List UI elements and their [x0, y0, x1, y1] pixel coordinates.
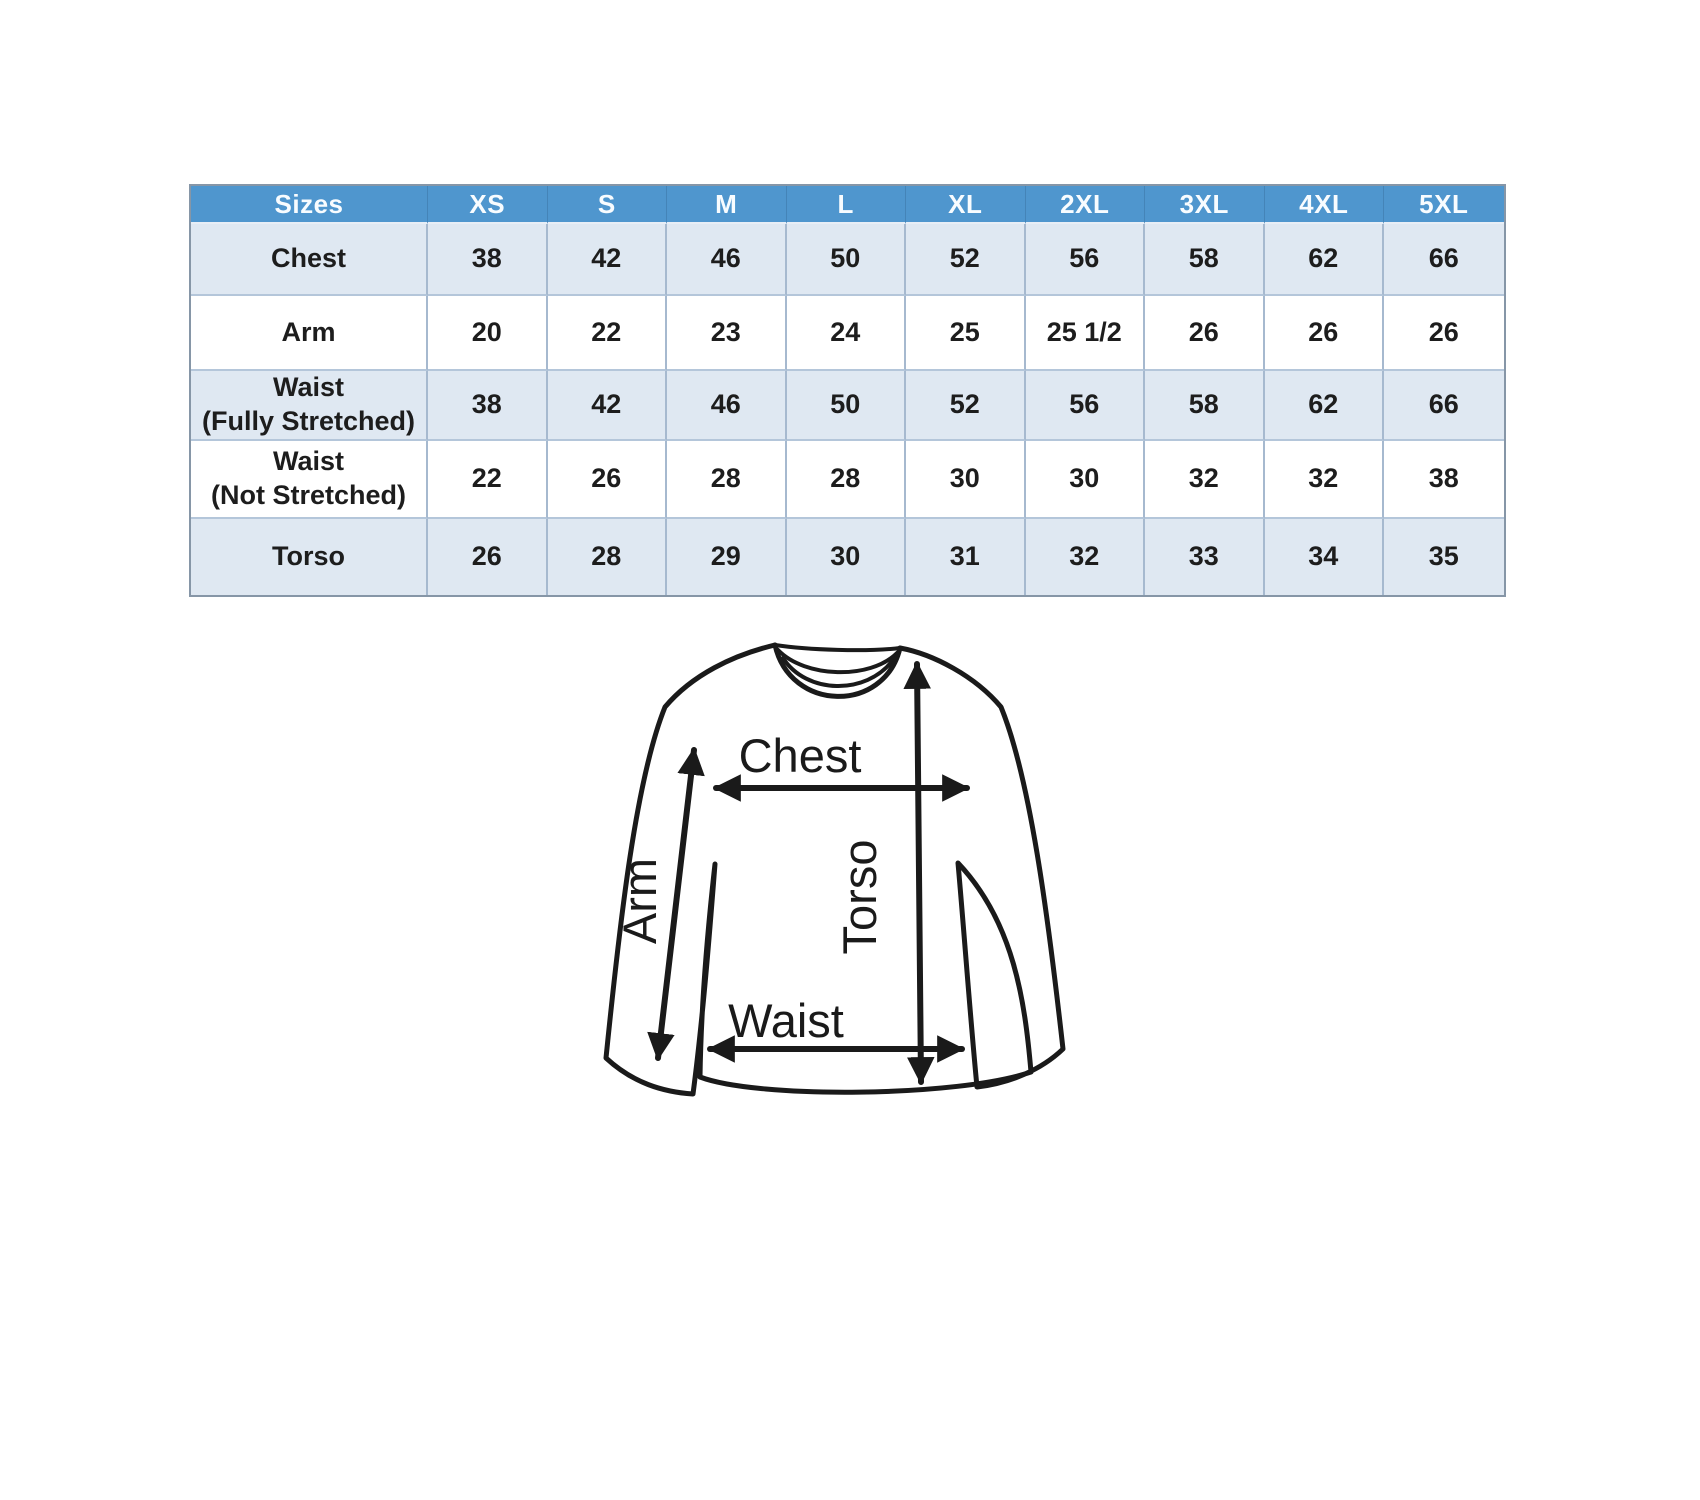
column-header-l: L — [787, 186, 907, 224]
size-guide-image: SizesXSSMLXL2XL3XL4XL5XL Chest3842465052… — [0, 0, 1700, 1500]
measurement-cell: 31 — [906, 519, 1026, 595]
measurement-cell: 58 — [1145, 371, 1265, 441]
measurement-cell: 42 — [548, 224, 668, 296]
measurement-cell: 22 — [428, 441, 548, 519]
measurement-cell: 28 — [667, 441, 787, 519]
measurement-cell: 38 — [428, 371, 548, 441]
measurement-cell: 24 — [787, 296, 907, 371]
measurement-cell: 28 — [548, 519, 668, 595]
measurement-cell: 52 — [906, 224, 1026, 296]
column-header-xs: XS — [428, 186, 548, 224]
size-chart-header-row: SizesXSSMLXL2XL3XL4XL5XL — [191, 186, 1504, 224]
measurement-cell: 33 — [1145, 519, 1265, 595]
measurement-cell: 25 1/2 — [1026, 296, 1146, 371]
arm-label: Arm — [613, 858, 666, 944]
measurement-cell: 28 — [787, 441, 907, 519]
measurement-cell: 22 — [548, 296, 668, 371]
long-sleeve-shirt-diagram: Chest Waist Torso Arm — [565, 608, 1090, 1120]
row-label: Arm — [191, 296, 428, 371]
measurement-cell: 50 — [787, 371, 907, 441]
size-chart-table-wrap: SizesXSSMLXL2XL3XL4XL5XL Chest3842465052… — [189, 184, 1506, 597]
collar-band-line — [778, 650, 897, 672]
column-header-xl: XL — [906, 186, 1026, 224]
table-row: Chest384246505256586266 — [191, 224, 1504, 296]
table-row: Torso262829303132333435 — [191, 519, 1504, 595]
torso-arrow — [917, 664, 921, 1082]
measurement-cell: 52 — [906, 371, 1026, 441]
measurement-cell: 46 — [667, 224, 787, 296]
column-header-3xl: 3XL — [1145, 186, 1265, 224]
table-row: Waist(Not Stretched)222628283030323238 — [191, 441, 1504, 519]
column-header-s: S — [548, 186, 668, 224]
measurement-cell: 32 — [1145, 441, 1265, 519]
size-chart-table: SizesXSSMLXL2XL3XL4XL5XL Chest3842465052… — [191, 186, 1504, 595]
row-label: Waist(Not Stretched) — [191, 441, 428, 519]
measurement-cell: 25 — [906, 296, 1026, 371]
size-chart-head: SizesXSSMLXL2XL3XL4XL5XL — [191, 186, 1504, 224]
column-header-m: M — [667, 186, 787, 224]
row-label: Torso — [191, 519, 428, 595]
measurement-cell: 34 — [1265, 519, 1385, 595]
measurement-cell: 50 — [787, 224, 907, 296]
waist-label: Waist — [728, 994, 844, 1047]
collar — [775, 645, 900, 696]
column-header-sizes: Sizes — [191, 186, 428, 224]
measurement-cell: 26 — [1265, 296, 1385, 371]
measurement-cell: 32 — [1026, 519, 1146, 595]
measurement-cell: 23 — [667, 296, 787, 371]
measurement-cell: 26 — [428, 519, 548, 595]
row-label-note: (Not Stretched) — [191, 479, 426, 513]
measurement-cell: 26 — [1384, 296, 1504, 371]
chest-label: Chest — [739, 729, 862, 782]
column-header-2xl: 2XL — [1026, 186, 1146, 224]
torso-label: Torso — [833, 840, 886, 955]
measurement-cell: 56 — [1026, 371, 1146, 441]
measurement-cell: 66 — [1384, 371, 1504, 441]
measurement-cell: 29 — [667, 519, 787, 595]
table-row: Waist(Fully Stretched)384246505256586266 — [191, 371, 1504, 441]
column-header-5xl: 5XL — [1384, 186, 1504, 224]
measurement-cell: 30 — [906, 441, 1026, 519]
measurement-cell: 38 — [1384, 441, 1504, 519]
measurement-cell: 38 — [428, 224, 548, 296]
measurement-cell: 20 — [428, 296, 548, 371]
row-label: Waist(Fully Stretched) — [191, 371, 428, 441]
table-row: Arm202223242525 1/2262626 — [191, 296, 1504, 371]
measurement-cell: 35 — [1384, 519, 1504, 595]
measurement-cell: 42 — [548, 371, 668, 441]
measurement-cell: 32 — [1265, 441, 1385, 519]
measurement-cell: 58 — [1145, 224, 1265, 296]
measurement-cell: 46 — [667, 371, 787, 441]
measurement-cell: 56 — [1026, 224, 1146, 296]
measurement-cell: 26 — [548, 441, 668, 519]
measurement-cell: 62 — [1265, 371, 1385, 441]
measurement-cell: 30 — [1026, 441, 1146, 519]
collar-top-line — [775, 645, 900, 650]
row-label-note: (Fully Stretched) — [191, 405, 426, 439]
garment-diagram: Chest Waist Torso Arm — [565, 608, 1090, 1125]
size-chart-body: Chest384246505256586266Arm202223242525 1… — [191, 224, 1504, 595]
column-header-4xl: 4XL — [1265, 186, 1385, 224]
measurement-cell: 26 — [1145, 296, 1265, 371]
row-label: Chest — [191, 224, 428, 296]
measurement-cell: 30 — [787, 519, 907, 595]
measurement-cell: 62 — [1265, 224, 1385, 296]
measurement-cell: 66 — [1384, 224, 1504, 296]
